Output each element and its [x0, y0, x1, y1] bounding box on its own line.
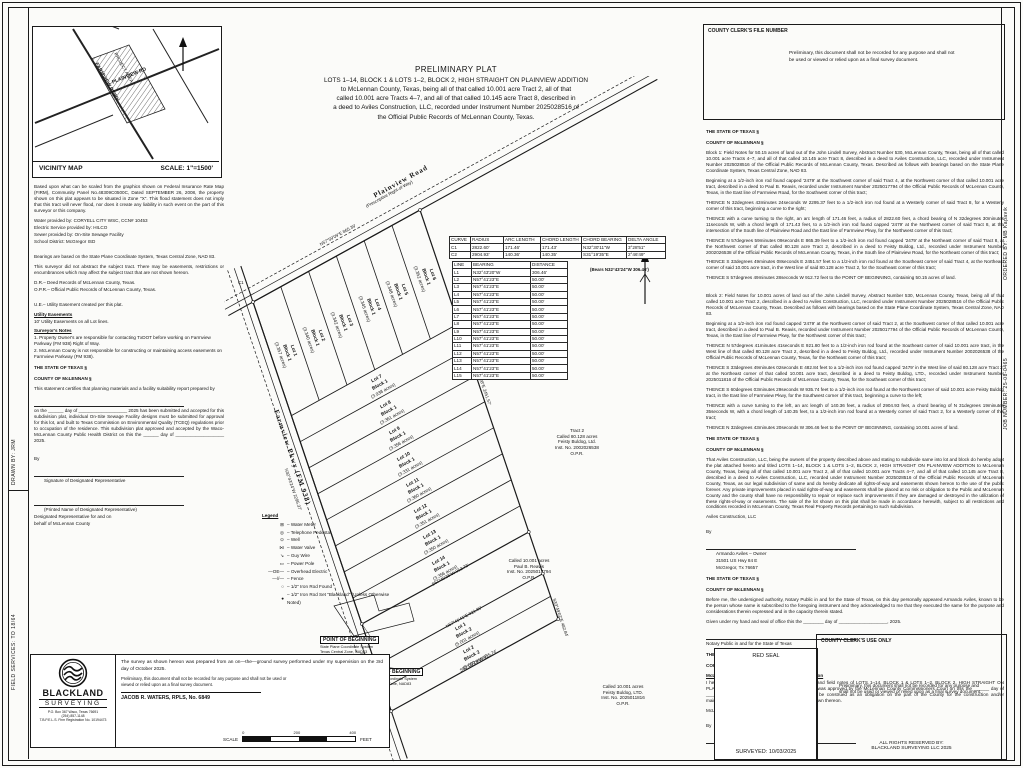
red-seal-label: RED SEAL [715, 653, 817, 659]
legal-block: THENCE S 33degrees 49minutes 02seconds E… [706, 365, 1004, 383]
note-block: By [34, 456, 224, 462]
legend-symbol-icon: ○ [262, 583, 284, 591]
legend-symbol-icon: —//— [262, 575, 284, 583]
blackland-logo-icon [58, 658, 88, 688]
col-header: CHORD LENGTH [541, 237, 582, 244]
logo-cell: BLACKLAND SURVEYING P.O. Box 367 Waco, T… [31, 655, 116, 747]
legend-item: ●– 1/2" Iron Rod Set "Blackland" (Unless… [262, 591, 394, 607]
note-block: 1. Property Owner's are responsible for … [34, 335, 224, 347]
legend-symbol-icon: ⊞ [262, 521, 284, 529]
vicinity-title-bar: VICINITY MAP SCALE: 1"=1500' [33, 161, 219, 175]
legal-block: THENCE with a curve turning to the left,… [706, 403, 1004, 421]
legend-label: – Telephone Pedestal [287, 529, 331, 537]
clerk-file-label: COUNTY CLERK'S FILE NUMBER [708, 28, 788, 34]
title-block-footer: BLACKLAND SURVEYING P.O. Box 367 Waco, T… [30, 654, 390, 748]
legal-block [706, 521, 1004, 527]
legend-symbol-icon: ↘ [262, 552, 284, 560]
prelim-note-bottom: Preliminary, this document shall not be … [839, 683, 989, 696]
scale-bar: SCALE 0200400 FEET [223, 736, 372, 742]
legal-block: Beginning at a 1/2-inch iron rod found c… [706, 178, 1004, 196]
legal-block: THENCE N 57degrees 41minutes 41seconds E… [706, 343, 1004, 361]
legend-label: – Water Meter [287, 521, 316, 529]
note-block [34, 398, 184, 407]
legal-block: Armando Aviles – Owner [716, 551, 1004, 557]
note-block: Electric Service provided by: HILCO [34, 225, 224, 231]
legal-block: That Aviles Construction, LLC, being the… [706, 457, 1004, 511]
legal-block [706, 285, 1004, 291]
table-row: L7N57°41'23"E50.00' [453, 313, 568, 320]
note-block: Designated Representative for and on [34, 514, 224, 520]
survey-statement: The survey as shown hereon was prepared … [121, 660, 383, 673]
line-table: LINEBEARINGDISTANCEL1N32°43'20"W306.46'L… [452, 261, 568, 380]
note-block: Signature of Designated Representative [44, 478, 224, 484]
vicinity-scale: SCALE: 1"=1500' [161, 165, 214, 172]
scale-unit: FEET [360, 737, 372, 742]
legend-symbol-icon: ◎ [262, 529, 284, 537]
survey-notes-column: Based upon what can be scaled from the g… [34, 184, 224, 528]
table-row: L14N57°41'23"E50.00' [453, 365, 568, 372]
legend-symbol-icon: ▭ [262, 560, 284, 568]
col-header: DELTA ANGLE [627, 237, 666, 244]
note-block: behalf of McLennan County [34, 521, 224, 527]
drawn-by-label: DRAWN BY: JRM [11, 370, 17, 485]
legend-symbol-icon: —OE— [262, 568, 284, 576]
legend-label: – Fence [287, 575, 304, 583]
plat-sheet: DRAWN BY: JRM FIELD SERVICES: TO 18/64 O… [0, 0, 1023, 768]
legal-block: 31501 US Hwy 84 E [716, 558, 1004, 564]
note-block [34, 485, 224, 491]
legal-block: Given under my hand and seal of office t… [706, 619, 1004, 625]
note-block: This statement certifies that planning m… [34, 386, 224, 392]
vicinity-map-drawing [33, 27, 221, 161]
note-block: This surveyor did not abstract the subje… [34, 264, 224, 276]
line-table-note: (Bears N32°43'24"W 306.46') [590, 267, 649, 272]
rights-reserved-2: BLACKLAND SURVEYING LLC 2025 [817, 746, 1006, 751]
note-block: Surveyor's Notes [34, 328, 224, 334]
legal-block [706, 541, 856, 550]
col-header: BEARING [472, 262, 531, 269]
note-block [34, 468, 184, 477]
legal-block: THENCE S 57degrees 49minutes 28seconds W… [706, 275, 1004, 281]
legend-item: ↘– Guy Wire [262, 552, 394, 560]
legal-block: THENCE N 57degrees 59minutes 09seconds E… [706, 238, 1004, 256]
legal-block: THENCE S 60degrees 03minutes 29seconds W… [706, 387, 1004, 399]
scale-label: SCALE [223, 737, 238, 742]
table-row: L6N57°41'23"E50.00' [453, 306, 568, 313]
col-header: ARC LENGTH [504, 237, 541, 244]
legal-block: Block 1: Field Notes for 50.15 acres of … [706, 150, 1004, 174]
note-block: D.R.– Deed Records of McLennan County, T… [34, 280, 224, 286]
table-row: L15N57°41'23"E50.00' [453, 372, 568, 379]
col-header: DISTANCE [531, 262, 568, 269]
table-row: C12822.60'171.46'171.43'N32°30'11"W3°28'… [450, 244, 666, 251]
note-block: (Printed Name of Designated Representati… [44, 507, 224, 513]
legal-block: THE STATE OF TEXAS § [706, 129, 1004, 135]
vicinity-map: PLAINVIEW RD FARMVIEW PKWY PROJECT AREA … [32, 26, 222, 178]
legend-item: ○– 1/2" Iron Rod Found [262, 583, 394, 591]
col-header: CURVE [450, 237, 471, 244]
legal-block: THENCE S 33degrees 49minutes 08seconds E… [706, 259, 1004, 271]
curve-table: CURVERADIUSARC LENGTHCHORD LENGTHCHORD B… [449, 236, 666, 259]
brand-name: BLACKLAND [31, 688, 115, 698]
table-row: L5N57°41'23"E50.00' [453, 298, 568, 305]
legend-symbol-icon: ⋈ [262, 544, 284, 552]
note-block: Water provided by: CORYELL CITY WSC, CCN… [34, 218, 224, 224]
legal-block: Aviles Construction, LLC [706, 514, 1004, 520]
legal-block: COUNTY OF McLENNAN § [706, 140, 1004, 146]
note-block: School District: McGregor ISD [34, 239, 224, 245]
legal-block: THENCE N 32degrees 43minutes 24seconds W… [706, 200, 1004, 212]
prelim-note-top: Preliminary, this document shall not be … [789, 51, 959, 64]
col-header: RADIUS [471, 237, 504, 244]
legal-block: COUNTY OF McLENNAN § [706, 447, 1004, 453]
vicinity-title: VICINITY MAP [39, 165, 83, 172]
note-block: 10' Utility Easements on all Lot lines. [34, 319, 224, 325]
legal-block: By [706, 529, 1004, 535]
left-margin-divider [8, 490, 28, 491]
field-services-label: FIELD SERVICES: TO 18/64 [11, 540, 17, 690]
legend-item: ⋈– Water Valve [262, 544, 394, 552]
legal-block: Before me, the undersigned authority, No… [706, 597, 1004, 615]
legend-label: – 1/2" Iron Rod Set "Blackland" (Unless … [287, 591, 394, 607]
table-row: L12N57°41'23"E50.00' [453, 350, 568, 357]
legal-block: THENCE N 32degrees 43minutes 20seconds W… [706, 425, 1004, 431]
red-seal-box: RED SEAL SURVEYED: 10/03/2025 [714, 648, 818, 760]
surveyor-name: JACOB R. WATERS, RPLS, No. 6849 [121, 692, 261, 701]
legend-label: – Water Valve [287, 544, 315, 552]
note-block: O.P.R.– Official Public Records of McLen… [34, 287, 224, 293]
clerk-file-box: COUNTY CLERK'S FILE NUMBER Preliminary, … [703, 24, 1005, 120]
legend-label: – Overhead Electric [287, 568, 327, 576]
legal-block: THE STATE OF TEXAS § [706, 576, 1004, 582]
note-block [34, 448, 224, 454]
col-header: CHORD BEARING [582, 237, 627, 244]
note-block: U.E.– Utility Easement created per this … [34, 302, 224, 308]
legend-label: – 1/2" Iron Rod Found [287, 583, 332, 591]
legend-item: —//—– Fence [262, 575, 394, 583]
legend-title: Legend [262, 512, 394, 520]
legend-box: Legend ⊞– Water Meter◎– Telephone Pedest… [262, 512, 394, 607]
legal-block: THE STATE OF TEXAS § [706, 436, 1004, 442]
legend-label: – Power Pole [287, 560, 314, 568]
legal-block: COUNTY OF McLENNAN § [706, 587, 1004, 593]
table-row: L11N57°41'23"E50.00' [453, 343, 568, 350]
note-block [34, 294, 224, 300]
table-row: L4N57°41'23"E50.00' [453, 291, 568, 298]
note-block: Based upon what can be scaled from the g… [34, 184, 224, 214]
legal-block: THENCE with a curve turning to the right… [706, 216, 1004, 234]
note-block [34, 246, 224, 252]
table-row: L13N57°41'23"E50.00' [453, 358, 568, 365]
legend-label: – Guy Wire [287, 552, 310, 560]
table-row: C22904.93'140.36'140.35'S31°19'35"E2°46'… [450, 251, 666, 258]
note-block: 2. McLennan County is not responsible fo… [34, 348, 224, 360]
note-block [34, 497, 184, 506]
legend-item: ⊙– Well [262, 536, 394, 544]
clerk-use-box: COUNTY CLERK'S USE ONLY Preliminary, thi… [816, 634, 1007, 760]
table-row: L10N57°41'23"E50.00' [453, 335, 568, 342]
note-block: THE STATE OF TEXAS § [34, 365, 224, 371]
legend-label: – Well [287, 536, 300, 544]
legal-block: Block 2: Field Notes for 10.001 acres of… [706, 293, 1004, 317]
table-row: L1N32°43'20"W306.46' [453, 269, 568, 276]
legal-block: McGregor, Tx 76657 [716, 565, 1004, 571]
legend-item: ⊞– Water Meter [262, 521, 394, 529]
statement-cell: The survey as shown hereon was prepared … [121, 660, 383, 742]
brand-addr-3: T.B.P.E.L.S. Firm Registration No. 10194… [31, 718, 115, 722]
title-line-1: PRELIMINARY PLAT [238, 64, 674, 76]
surveyed-date: SURVEYED: 10/03/2025 [715, 749, 817, 755]
legend-symbol-icon: ● [262, 595, 284, 603]
legend-item: ▭– Power Pole [262, 560, 394, 568]
legend-item: —OE—– Overhead Electric [262, 568, 394, 576]
note-block: Bearings are based on the State Plane Co… [34, 254, 224, 260]
col-header: LINE [453, 262, 472, 269]
note-block: COUNTY OF McLENNAN § [34, 376, 224, 382]
table-row: L9N57°41'23"E50.00' [453, 328, 568, 335]
legend-item: ◎– Telephone Pedestal [262, 529, 394, 537]
note-block: Sewer provided by: On-Site Sewage Facili… [34, 232, 224, 238]
note-block: Utility Easements [34, 312, 224, 318]
table-row: L3N57°41'23"E50.00' [453, 284, 568, 291]
clerk-use-label: COUNTY CLERK'S USE ONLY [821, 638, 892, 644]
legal-block: Beginning at a 1/2-inch iron rod found c… [706, 321, 1004, 339]
table-row: L2N57°41'23"E50.00' [453, 276, 568, 283]
note-block: on the ______ day of ___________________… [34, 408, 224, 444]
brand-sub: SURVEYING [39, 699, 107, 708]
footer-prelim: Preliminary, this document shall not be … [121, 676, 291, 687]
table-row: L8N57°41'23"E50.00' [453, 321, 568, 328]
legend-symbol-icon: ⊙ [262, 536, 284, 544]
